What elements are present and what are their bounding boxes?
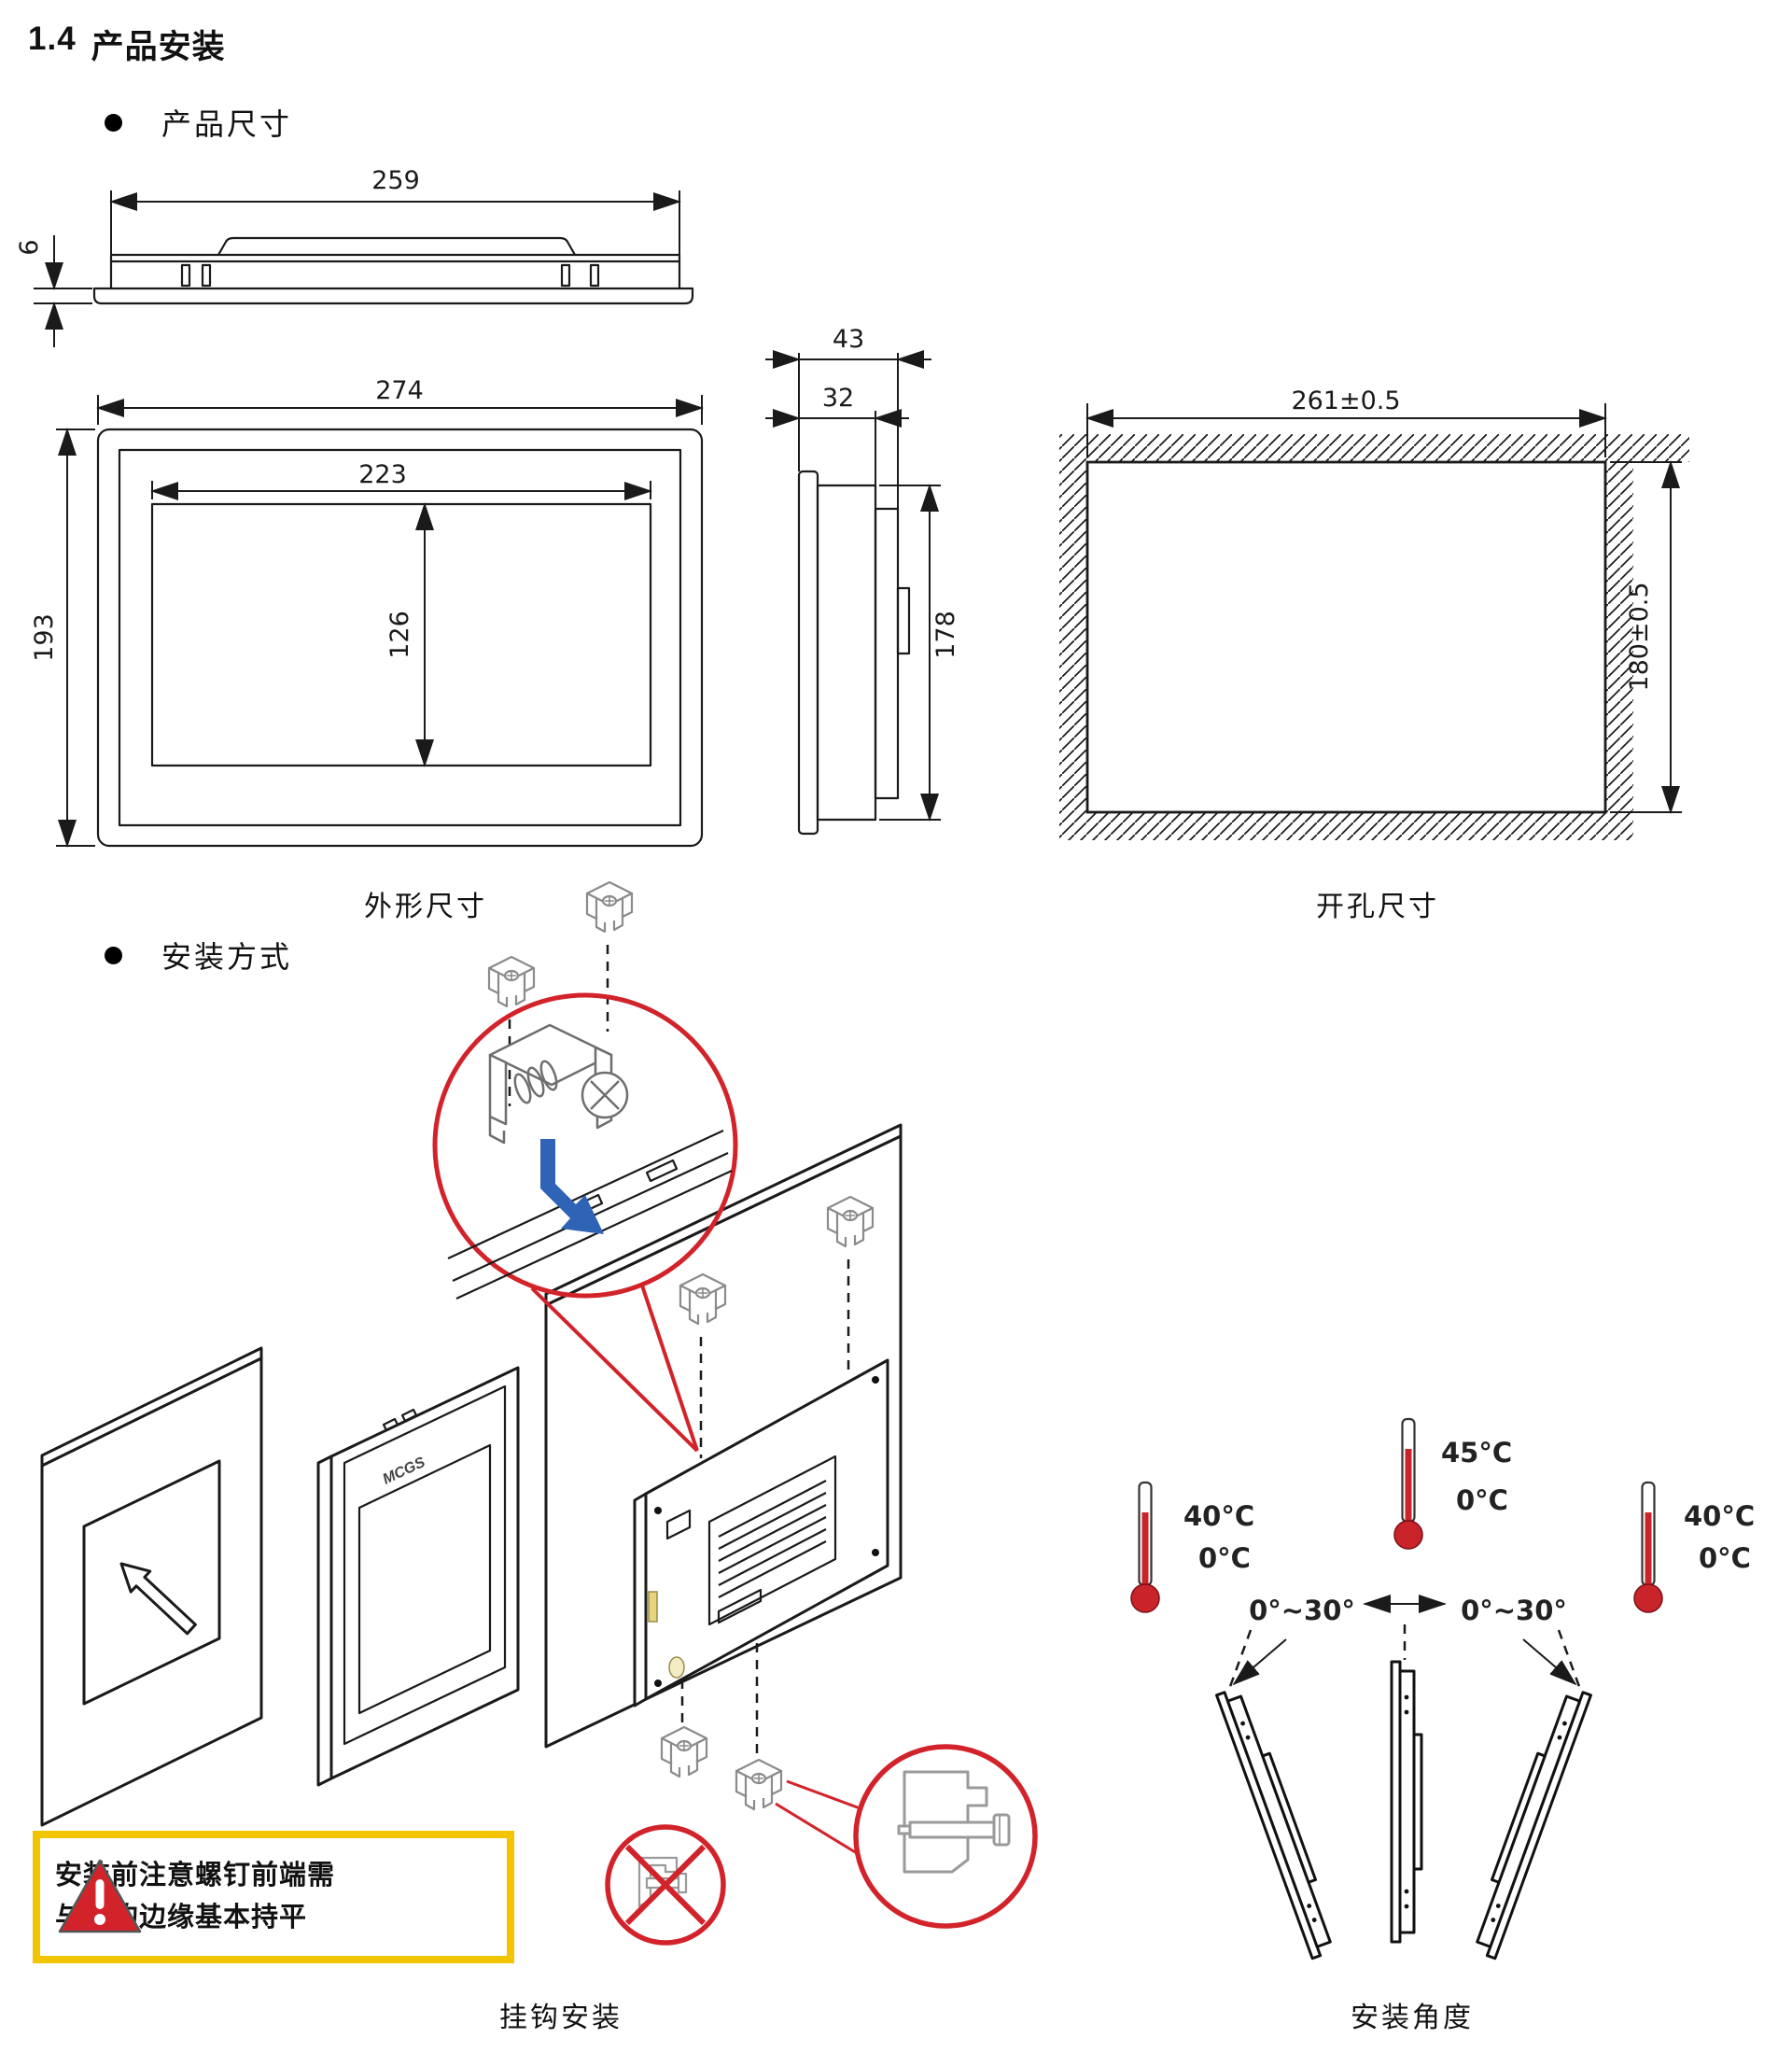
dim-depth-body: 32 [822, 384, 854, 413]
drawing-installation-angle: 40°C 0°C 45°C 0°C 40°C 0°C 0°~30° 0°~30° [1092, 1391, 1792, 1975]
panel-tilted-left [1217, 1685, 1341, 1959]
panel-tilted-right [1467, 1685, 1591, 1959]
temp-right-low: 0°C [1699, 1542, 1751, 1574]
dim-43: 43 [765, 325, 931, 509]
temp-left-low: 0°C [1198, 1542, 1251, 1574]
angle-range-left: 0°~30° [1249, 1595, 1355, 1626]
caption-hook-install: 挂钩安装 [458, 1994, 664, 2035]
dim-side-height: 178 [931, 611, 960, 659]
thermometer-left [1131, 1483, 1159, 1612]
cutout-body [1059, 434, 1689, 840]
dim-126: 126 [385, 504, 425, 766]
drawing-top-view: 259 6 [19, 149, 728, 369]
hook-clamp-icon [736, 1760, 781, 1809]
temp-right-high: 40°C [1684, 1500, 1755, 1532]
buzzer [669, 1657, 684, 1678]
sd-slot [649, 1592, 657, 1622]
warning-icon [55, 1856, 145, 1938]
temp-left-high: 40°C [1183, 1500, 1254, 1532]
section-number: 1.4 [28, 21, 77, 68]
insert-arrow-blue-icon [540, 1139, 604, 1234]
drawing-cutout: 261±0.5 180±0.5 [1050, 373, 1703, 859]
section-title: 1.4 产品安装 [28, 21, 226, 68]
thermometer-right [1634, 1483, 1662, 1612]
manual-page: { "page": { "section_no": "1.4", "sectio… [0, 0, 1792, 2066]
hook-clamp-icon [662, 1727, 707, 1777]
caption-install-angle: 安装角度 [1309, 1994, 1515, 2035]
dim-front-lip: 6 [15, 239, 44, 255]
hook-clamp-icon [489, 957, 534, 1006]
cabinet-panel-left [42, 1348, 261, 1825]
dim-32: 32 [765, 384, 909, 509]
warning-box: 安装前注意螺钉前端需 与挂钩边缘基本持平 [33, 1831, 514, 1963]
bullet-icon [105, 114, 122, 132]
dim-display-width: 223 [358, 460, 407, 489]
drawing-front-view: 274 223 193 126 [28, 378, 719, 864]
angle-range-right: 0°~30° [1461, 1595, 1567, 1626]
dim-top-width: 259 [371, 166, 420, 195]
temp-center-low: 0°C [1456, 1484, 1508, 1516]
temp-center-high: 45°C [1441, 1437, 1512, 1469]
dim-274: 274 [98, 376, 702, 425]
dim-cutout-width: 261±0.5 [1291, 386, 1400, 415]
dim-259: 259 [111, 166, 679, 255]
dim-178: 178 [879, 485, 960, 820]
dim-display-height: 126 [385, 611, 414, 659]
drawing-side-view: 43 32 178 [756, 317, 980, 859]
caption-cutout: 开孔尺寸 [1275, 883, 1480, 924]
dim-6: 6 [15, 235, 92, 347]
drawing-hook-installation: MCGS [23, 868, 1059, 1989]
dim-193: 193 [30, 429, 95, 846]
zoom-circle-hook-insert [435, 995, 735, 1299]
dim-outer-height: 193 [30, 613, 59, 662]
bullet-product-dimensions: 产品尺寸 [105, 101, 292, 144]
panel-vertical [1392, 1662, 1421, 1942]
section-title-text: 产品安装 [91, 21, 226, 68]
dim-cutout-height: 180±0.5 [1625, 582, 1654, 691]
hook-screw-closeup [776, 1747, 1035, 1926]
dim-223: 223 [152, 460, 651, 499]
thermometer-center [1394, 1419, 1422, 1549]
hook-clamp-icon [587, 882, 632, 932]
top-view-body [94, 238, 693, 303]
bullet-product-dimensions-label: 产品尺寸 [161, 101, 292, 144]
dim-outer-width: 274 [375, 376, 424, 405]
side-view-body [799, 471, 909, 834]
dim-depth-total: 43 [833, 325, 864, 354]
prohibited-mounting-icon [608, 1827, 723, 1943]
hmi-front-device: MCGS [318, 1368, 518, 1785]
